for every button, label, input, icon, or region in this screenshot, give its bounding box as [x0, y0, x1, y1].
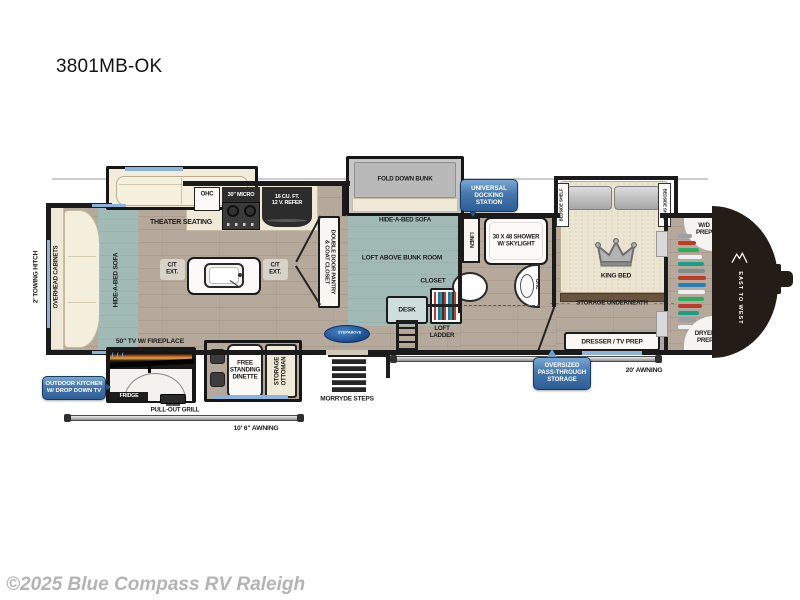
- step-tread: [332, 387, 366, 392]
- pocket-door: [428, 304, 462, 307]
- theater-sofa-divider: [181, 178, 182, 204]
- morryde-steps-label: MORRYDE STEPS: [320, 395, 374, 402]
- bed-slide-wall-left: [554, 176, 558, 218]
- wd-prep-label: W/D PREP: [696, 223, 712, 237]
- dinette-table-label: FREE STANDING DINETTE: [230, 361, 260, 382]
- wall-top-kitchen: [183, 181, 350, 186]
- bath-sink-basin: [520, 274, 534, 298]
- bed-pillow: [566, 186, 612, 210]
- flame-mark: [117, 352, 120, 358]
- kitchen-ohc-box: [194, 187, 220, 211]
- step-tread: [332, 359, 366, 364]
- crown-icon: [594, 237, 638, 269]
- storage-ottoman-label: STORAGE OTTOMAN: [274, 357, 287, 386]
- ct-ext-left-label: C/T EXT.: [166, 262, 178, 275]
- entry-threshold: [326, 350, 368, 355]
- loft-ladder-label: LOFT LADDER: [430, 326, 455, 340]
- awning-left-cap: [297, 414, 304, 422]
- theater-seating-label: THEATER SEATING: [150, 219, 212, 227]
- bunk-closet-hangers: [434, 307, 458, 320]
- docking-station-badge: UNIVERSAL DOCKING STATION: [460, 179, 518, 212]
- hide-a-bed-sofa-left-label: HIDE-A-BED SOFA: [112, 253, 119, 308]
- fold-down-bunk-label: FOLD DOWN BUNK: [378, 177, 433, 184]
- stepabove-logo-text: STEPABOVE: [338, 331, 362, 335]
- towing-hitch-label: 2' TOWING HITCH: [32, 251, 39, 303]
- awning-right-cap: [655, 355, 662, 363]
- stove-burner: [244, 205, 256, 217]
- bunk-hide-a-bed-label: HIDE-A-BED SOFA: [379, 218, 431, 225]
- bunk-closet-label: CLOSET: [420, 277, 445, 284]
- kitchen-ohc-label: OHC: [201, 192, 214, 199]
- flame-mark: [122, 352, 125, 358]
- brand-logo-text: EAST TO WEST: [737, 271, 743, 324]
- wall-bunk-bath: [458, 215, 462, 313]
- bedside-shelf-right-label: BEDSIDE SHELF: [662, 189, 667, 222]
- bed-pillow: [614, 186, 660, 210]
- king-bed-label: KING BED: [601, 272, 631, 279]
- island-sink-basin: [209, 267, 239, 284]
- storage-underneath-label: STORAGE UNDERNEATH: [576, 301, 647, 308]
- rear-cap: [712, 206, 778, 358]
- awning-right-bar: [392, 356, 660, 362]
- dresser-label: DRESSER / TV PREP: [581, 338, 642, 345]
- refrigerator-label: 16 CU. FT. 12 V. REFER: [272, 194, 302, 206]
- pocket-door-track: [464, 305, 540, 306]
- bed-slide-wall-top: [554, 176, 678, 180]
- step-tread: [332, 380, 366, 385]
- overhead-cabinets-label: OVERHEAD CABINETS: [54, 246, 61, 309]
- loft-above-label: LOFT ABOVE BUNK ROOM: [362, 254, 442, 261]
- desk-label: DESK: [398, 306, 415, 313]
- bed-slide-wall-right: [674, 176, 678, 218]
- dinette-chair: [210, 372, 225, 387]
- bedside-shelf-left-label: BEDSIDE SHELF: [560, 189, 565, 222]
- copyright-watermark: ©2025 Blue Compass RV Raleigh: [6, 574, 305, 596]
- rear-hitch-arm: [779, 271, 793, 287]
- left-window: [47, 240, 51, 328]
- hide-a-bed-sofa-left: [64, 210, 100, 348]
- bunk-sofa-strip: [352, 198, 458, 212]
- bed-slide-rail: [656, 311, 668, 337]
- bed-slide-rail: [656, 231, 668, 257]
- stove-knobs: [227, 223, 257, 226]
- outdoor-kitchen-badge: OUTDOOR KITCHEN W/ DROP DOWN TV: [42, 376, 106, 400]
- flame-mark: [112, 352, 115, 358]
- tv-fireplace-label: 50" TV W/ FIREPLACE: [116, 338, 184, 346]
- dinette-window: [214, 395, 288, 399]
- awning-right-label: 20' AWNING: [626, 367, 663, 375]
- sink-faucet: [238, 273, 242, 277]
- pantry-label: DOUBLE DOOR PANTRY & COAT CLOSET: [323, 230, 336, 295]
- top-left-accent: [92, 204, 126, 208]
- pass-through-badge: OVERSIZED PASS-THROUGH STORAGE: [533, 357, 591, 390]
- refrigerator-curve: [267, 219, 307, 222]
- bath-ohc-label: OHC: [533, 279, 539, 290]
- step-tread: [332, 366, 366, 371]
- floorplan-page: 3801MB-OK ©2025 Blue Compass RV Raleigh …: [0, 0, 800, 600]
- page-title: 3801MB-OK: [56, 56, 162, 78]
- awning-left-bar: [66, 415, 302, 421]
- awning-right-cap: [390, 355, 397, 363]
- loft-ladder: [396, 320, 418, 350]
- pull-out-grill-label: PULL-OUT GRILL: [151, 408, 200, 415]
- brand-mountain-icon: [731, 252, 748, 264]
- outdoor-fridge-label: FRIDGE: [120, 394, 139, 400]
- awning-left-label: 10' 6" AWNING: [233, 425, 278, 433]
- linen-label: LINEN: [468, 232, 474, 248]
- tv-bar-leg: [148, 366, 151, 373]
- step-tread: [332, 373, 366, 378]
- wall-bath-bedroom: [552, 215, 556, 307]
- pull-out-grill: [160, 394, 186, 404]
- wall-kitchen-bunk-step: [342, 181, 346, 216]
- stove-burner: [227, 205, 239, 217]
- sofa-cushion-line: [68, 302, 96, 303]
- shower-label: 30 X 48 SHOWER W/ SKYLIGHT: [493, 234, 540, 247]
- sofa-cushion-line: [68, 256, 96, 257]
- dresser-window: [582, 351, 642, 355]
- microwave-label: 30" MICRO: [228, 191, 255, 197]
- ct-ext-right-label: C/T EXT.: [269, 262, 281, 275]
- awning-left-cap: [64, 414, 71, 422]
- theater-slide-window: [125, 167, 183, 171]
- dryer-prep-label: DRYER PREP: [695, 331, 715, 345]
- wall-top-rear: [660, 213, 718, 218]
